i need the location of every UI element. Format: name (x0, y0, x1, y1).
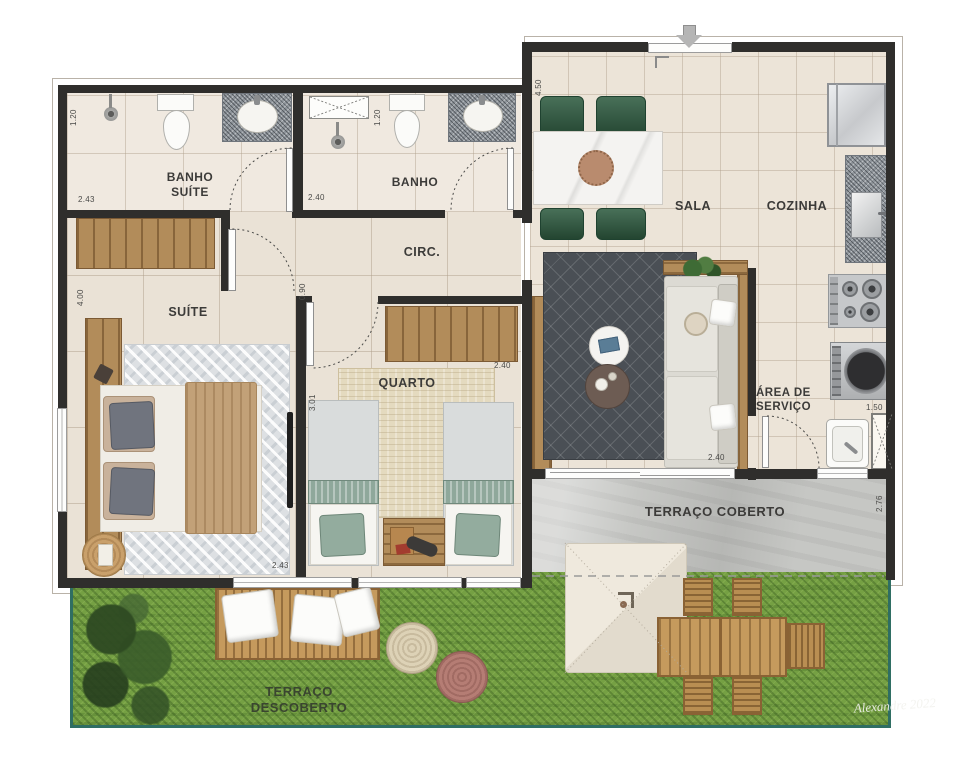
measurement: 3.01 (309, 377, 317, 411)
shower-arm-suite (109, 94, 112, 108)
outdoor-table-split (719, 617, 722, 677)
umbrella-pole-mark-2 (631, 592, 634, 608)
suite-wardrobe (76, 218, 215, 269)
entrance-door-hook-2 (655, 56, 657, 68)
coffee-table-cup-2 (608, 372, 617, 381)
quarto-bed-left-pillow (319, 513, 366, 557)
kitchen-sink (851, 192, 882, 238)
wall (513, 210, 530, 218)
wall (60, 210, 227, 218)
wall (732, 42, 895, 52)
measurement: 1.20 (70, 96, 78, 126)
garden-tree (72, 588, 184, 726)
wall (522, 85, 532, 223)
entrance-door-hook (655, 56, 669, 58)
window (466, 577, 521, 588)
room-label-banho-suite: BANHO SUÍTE (150, 170, 230, 200)
stove-burner-1 (842, 281, 858, 297)
room-label-line: ÁREA DE (756, 387, 811, 399)
outdoor-chair-3 (683, 677, 713, 715)
wall (522, 42, 648, 52)
room-label-banho: BANHO (385, 175, 445, 190)
service-window (817, 468, 868, 479)
garden-pouf-rose (436, 651, 488, 703)
entry-arrow-icon-head (676, 35, 702, 48)
straw-fan-decor (684, 312, 708, 336)
measurement: 2.40 (494, 362, 511, 370)
faucet (479, 95, 485, 105)
room-label-terraco-coberto: TERRAÇO COBERTO (640, 504, 790, 520)
sliding-door-rail-2 (640, 475, 730, 476)
sliding-door (545, 468, 735, 479)
wall (868, 469, 886, 479)
quarto-bed-right-pillow (454, 513, 501, 557)
room-label-quarto: QUARTO (370, 376, 444, 392)
room-label-line: BANHO (167, 170, 214, 184)
outdoor-chair-2 (732, 578, 762, 616)
room-label-terraco-descoberto: TERRAÇO DESCOBERTO (216, 684, 382, 717)
window (358, 577, 462, 588)
outdoor-chair-head (787, 623, 825, 669)
washing-machine-panel (832, 346, 841, 396)
sliding-door-rail (550, 472, 640, 473)
suite-bed-blanket (185, 382, 257, 534)
wall (532, 469, 545, 479)
wall (522, 280, 532, 588)
room-label-area-servico: ÁREA DE SERVIÇO (756, 386, 830, 415)
shower-head-suite-icon (104, 107, 118, 121)
dining-centerpiece (578, 150, 614, 186)
coffee-table-cup-1 (595, 378, 608, 391)
wall (378, 296, 522, 304)
measurement: 0.90 (299, 270, 307, 300)
outdoor-chair-1 (683, 578, 713, 616)
room-label-circ: CIRC. (392, 245, 452, 261)
toilet-tank (389, 94, 425, 111)
measurement: 1.50 (866, 404, 883, 412)
stove-burner-3 (844, 306, 856, 318)
sofa-pillow-1 (708, 298, 737, 327)
door-leaf-banho-suite (286, 148, 293, 212)
measurement: 2.43 (272, 562, 289, 570)
quarto-wardrobe (385, 306, 518, 362)
door-leaf-quarto (306, 302, 314, 366)
door-leaf-banho (507, 148, 514, 210)
entry-arrow-icon (683, 25, 696, 35)
wall (296, 296, 306, 588)
washing-machine-door (844, 348, 888, 394)
quarto-bed-right-blanket (443, 480, 514, 504)
suite-pillow-gray-2 (109, 467, 155, 516)
wall (748, 268, 756, 416)
wall (292, 210, 445, 218)
room-label-suite: SUÍTE (158, 305, 218, 321)
measurement: 4.50 (535, 62, 543, 96)
measurement: 2.40 (708, 454, 725, 462)
measurement: 2.43 (78, 196, 95, 204)
door-leaf-suite (228, 229, 236, 291)
stove-control-strip (830, 277, 838, 325)
outdoor-chair-4 (732, 677, 762, 715)
window (57, 408, 67, 512)
umbrella-pole-dot (620, 601, 627, 608)
dining-chair-bottom-left (540, 208, 584, 240)
floor-plan: BANHO SUÍTE BANHO CIRC. SUÍTE QUARTO SAL… (0, 0, 960, 760)
shower-head-icon (331, 135, 345, 149)
wall (748, 468, 756, 480)
door-leaf-servico (762, 416, 769, 468)
room-label-sala: SALA (663, 199, 723, 215)
room-label-line: SUÍTE (171, 185, 209, 199)
sofa-side-console (737, 274, 748, 470)
daybed-pillow-1 (221, 589, 279, 644)
dining-chair-bottom-right (596, 208, 646, 240)
fridge-door-line (836, 84, 838, 146)
suite-pillow-gray-1 (109, 401, 155, 450)
garden-pouf-cream (386, 622, 438, 674)
wall (293, 85, 303, 218)
toilet-suite-tank (157, 94, 194, 111)
wall (58, 85, 67, 588)
measurement: 2.76 (876, 480, 884, 512)
suite-tv (287, 412, 293, 508)
measurement: 1.20 (374, 96, 382, 126)
stove-burner-4 (860, 302, 880, 322)
measurement: 2.40 (308, 194, 325, 202)
wall (756, 469, 817, 479)
room-label-cozinha: COZINHA (757, 199, 837, 215)
sofa-pillow-2 (709, 403, 738, 432)
wall (886, 42, 895, 580)
faucet-suite (254, 95, 260, 105)
quarto-bed-left-blanket (308, 480, 379, 504)
wall (735, 469, 748, 479)
measurement: 4.00 (77, 272, 85, 306)
shower-box (309, 96, 369, 119)
room-label-line: SERVIÇO (756, 401, 811, 413)
shower-arm (336, 122, 339, 136)
window (233, 577, 352, 588)
wall (60, 578, 233, 588)
suite-side-table-tray (98, 544, 113, 566)
stove-burner-2 (862, 279, 882, 299)
outdoor-table (657, 617, 787, 677)
